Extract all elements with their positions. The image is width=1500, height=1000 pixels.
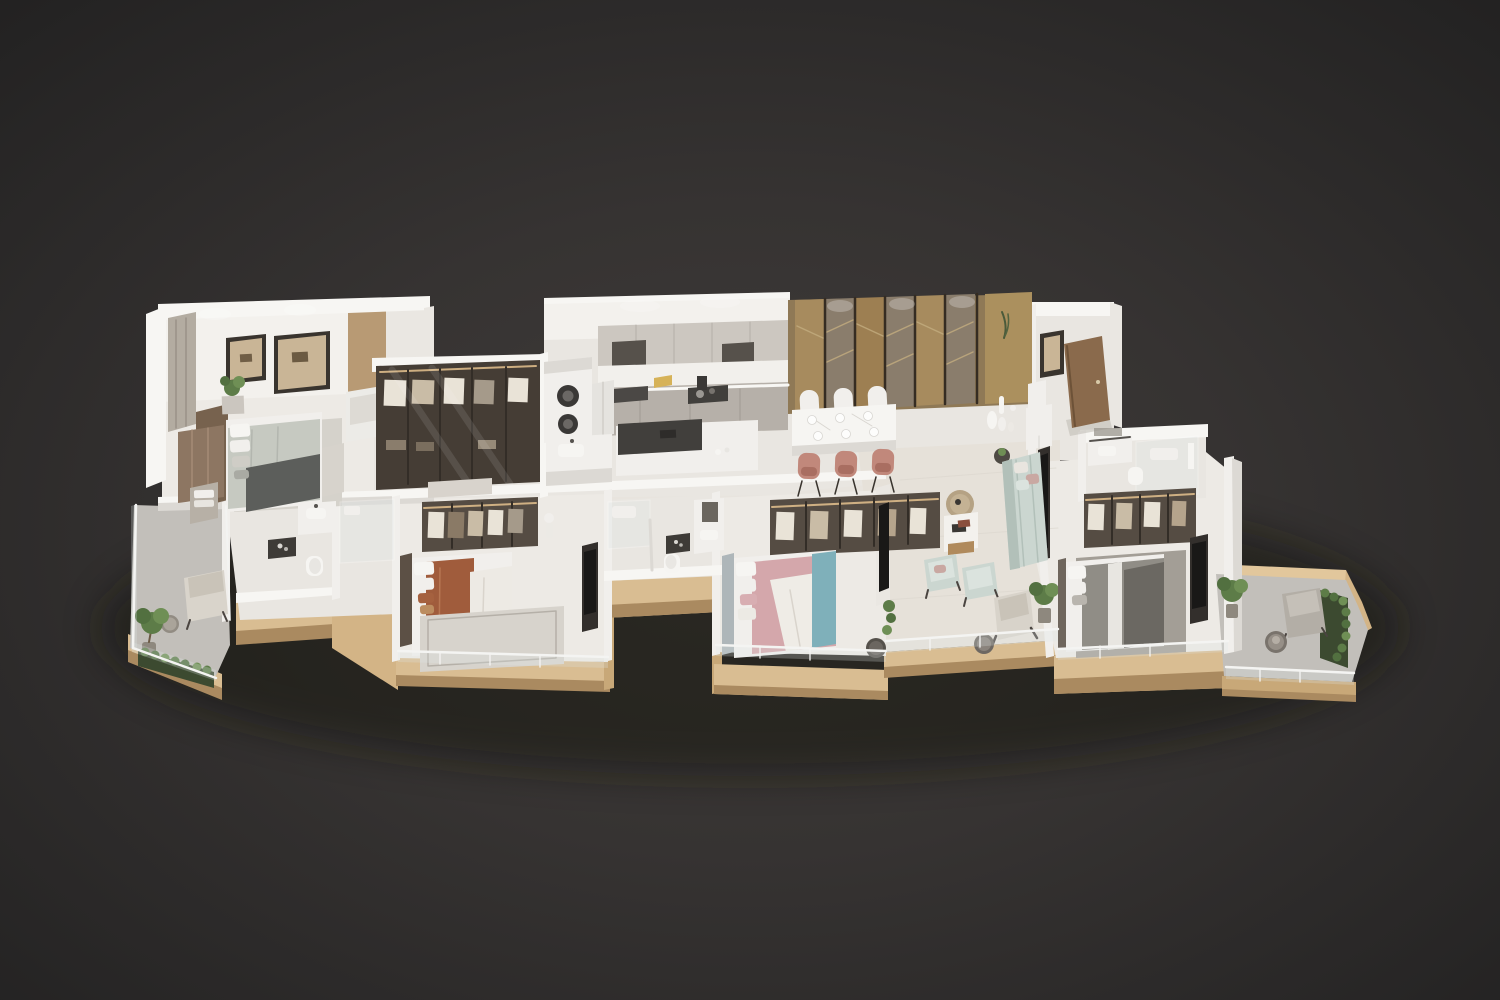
ceiling-light-glow — [620, 300, 660, 312]
pillow — [1013, 461, 1028, 473]
bedroom3-tv-screen — [879, 502, 889, 592]
basin — [1098, 446, 1116, 456]
layer-foyer — [1028, 330, 1112, 438]
pillow — [738, 608, 757, 621]
plant — [1045, 583, 1059, 597]
hanging-clothes — [508, 509, 524, 534]
east-suite-shape — [1342, 608, 1351, 617]
folded-clothes — [386, 440, 406, 450]
tree — [153, 608, 169, 624]
hanging-clothes — [428, 512, 445, 539]
pillow — [736, 578, 757, 592]
shower-tray — [1150, 448, 1178, 460]
isometric-floorplan-render — [0, 0, 1500, 1000]
folded-clothes — [416, 442, 434, 451]
bed-throw — [1124, 562, 1164, 648]
east-suite-shape — [1321, 589, 1330, 598]
hanging-clothes — [468, 511, 484, 537]
master-suite-shape — [284, 547, 288, 551]
hanging-clothes — [810, 511, 829, 540]
coffee-machine — [697, 376, 707, 390]
master-suite-shape — [240, 354, 252, 363]
planter-pot — [1038, 608, 1051, 623]
plate — [836, 414, 845, 423]
hanging-clothes — [1088, 504, 1105, 531]
bedroom2-headboard — [400, 553, 412, 647]
master-suite-shape — [278, 544, 283, 549]
hanging-clothes — [474, 380, 495, 405]
foyer-shape — [1044, 335, 1060, 372]
curtains — [168, 312, 196, 432]
pot — [696, 390, 704, 398]
basin — [700, 530, 718, 540]
foyer-east-wall — [1110, 302, 1122, 428]
tap — [570, 439, 574, 443]
island-dark-top — [618, 419, 702, 455]
tree — [135, 608, 151, 624]
master-suite-shape — [292, 352, 309, 363]
floorplan-stage — [0, 0, 1500, 1000]
bath-mat — [268, 537, 296, 559]
cup — [715, 449, 721, 455]
hanging-clothes — [488, 510, 504, 536]
decor — [955, 499, 961, 505]
pillow — [420, 605, 434, 615]
floor-lamp — [544, 513, 554, 523]
teal-throw — [812, 551, 836, 648]
master-suite-shape — [194, 500, 214, 508]
basin — [558, 444, 584, 457]
bed-bench — [322, 443, 344, 497]
pillow — [230, 439, 251, 452]
basin — [306, 508, 326, 519]
books — [958, 519, 971, 527]
dining-shape — [838, 465, 854, 475]
vase — [1008, 422, 1014, 432]
master-suite-shape — [350, 393, 378, 425]
bath-mat — [666, 533, 690, 554]
pillow — [736, 561, 757, 576]
shower-tray — [612, 506, 636, 518]
east-suite-shape — [1339, 597, 1348, 606]
shower-column — [1188, 443, 1194, 469]
hanging-clothes — [508, 378, 529, 403]
door-handle — [1096, 380, 1100, 384]
pillow — [414, 577, 435, 590]
master-suite-shape — [278, 335, 326, 390]
pillow — [1016, 479, 1030, 490]
tree — [1217, 577, 1231, 591]
ceiling-light-glow — [700, 296, 740, 308]
dining-shape — [875, 463, 891, 473]
plate — [842, 430, 851, 439]
cooktop — [688, 385, 728, 404]
kitchen-shape — [563, 391, 574, 402]
plate — [864, 412, 873, 421]
pillow — [1068, 582, 1087, 595]
nightstand — [222, 396, 245, 415]
plant — [233, 376, 245, 388]
tree — [1234, 579, 1248, 593]
planter-pot — [1226, 604, 1238, 618]
pot — [709, 388, 715, 394]
layer-feature-wall — [788, 292, 1032, 414]
walls-shape — [1078, 430, 1086, 502]
mirror — [1094, 428, 1122, 436]
plate — [808, 416, 817, 425]
hanging-clothes — [776, 512, 795, 541]
cup — [725, 448, 730, 453]
east-suite-shape — [1272, 636, 1280, 644]
bedroom3-headboard — [722, 553, 734, 655]
pillow — [1068, 566, 1087, 580]
south-rooms-shape — [650, 520, 652, 570]
dining-shape — [801, 467, 817, 477]
south-rooms-shape — [666, 555, 677, 569]
plant — [998, 448, 1006, 456]
plant — [886, 613, 896, 623]
south-rooms-shape — [674, 540, 678, 544]
feature-wall-shape — [945, 294, 975, 405]
ceiling-light-glow — [827, 300, 853, 312]
tray — [660, 430, 676, 439]
mirror — [702, 502, 718, 522]
master-suite-shape — [194, 490, 214, 499]
feature-wall-shape — [915, 295, 945, 406]
east-suite-shape — [1338, 644, 1347, 653]
ceiling-light-glow — [284, 304, 316, 316]
pillow — [232, 455, 251, 467]
east-suite-shape — [1342, 632, 1351, 641]
master-west-wall — [146, 306, 166, 488]
feature-wall-shape — [985, 292, 1032, 404]
pillow — [230, 423, 251, 437]
hanging-clothes — [1172, 501, 1187, 526]
hanging-clothes — [844, 510, 863, 538]
master-suite-shape — [309, 558, 321, 574]
plate — [870, 428, 879, 437]
vase — [987, 411, 997, 429]
pillow — [934, 564, 947, 573]
hanging-clothes — [1144, 502, 1161, 528]
pillow — [1072, 595, 1088, 606]
tv-screen — [584, 549, 596, 615]
south-rooms-shape — [679, 543, 683, 547]
decor — [1010, 405, 1016, 411]
blanket-fold — [1108, 562, 1122, 650]
ceiling-light-glow — [889, 298, 915, 310]
tv-screen — [1192, 541, 1206, 609]
pillow — [234, 469, 250, 479]
plant — [1029, 582, 1043, 596]
feature-wall-shape — [885, 296, 915, 408]
east-suite-shape — [1330, 593, 1339, 602]
tap — [314, 504, 318, 508]
statue — [999, 396, 1004, 414]
plate — [814, 432, 823, 441]
plant — [883, 600, 895, 612]
pillow — [414, 561, 435, 575]
pillow — [740, 594, 758, 606]
east-suite-shape — [1342, 620, 1351, 629]
plant — [220, 376, 230, 386]
ceiling-light-glow — [949, 296, 975, 308]
walls-shape — [1028, 302, 1114, 316]
hanging-clothes — [910, 508, 927, 535]
toilet — [1128, 467, 1143, 485]
bedroom4-headboard — [1058, 558, 1066, 650]
console-table — [1028, 380, 1046, 438]
shower-tray — [344, 506, 360, 515]
kitchen-shape — [563, 419, 573, 429]
east-suite-shape — [1333, 653, 1342, 662]
hanging-clothes — [1116, 503, 1133, 530]
pillow — [418, 593, 435, 604]
plant — [882, 625, 892, 635]
vase — [998, 417, 1006, 431]
ceiling-light-glow — [199, 308, 231, 320]
south-rooms-shape — [546, 523, 553, 538]
hanging-clothes — [448, 512, 465, 539]
